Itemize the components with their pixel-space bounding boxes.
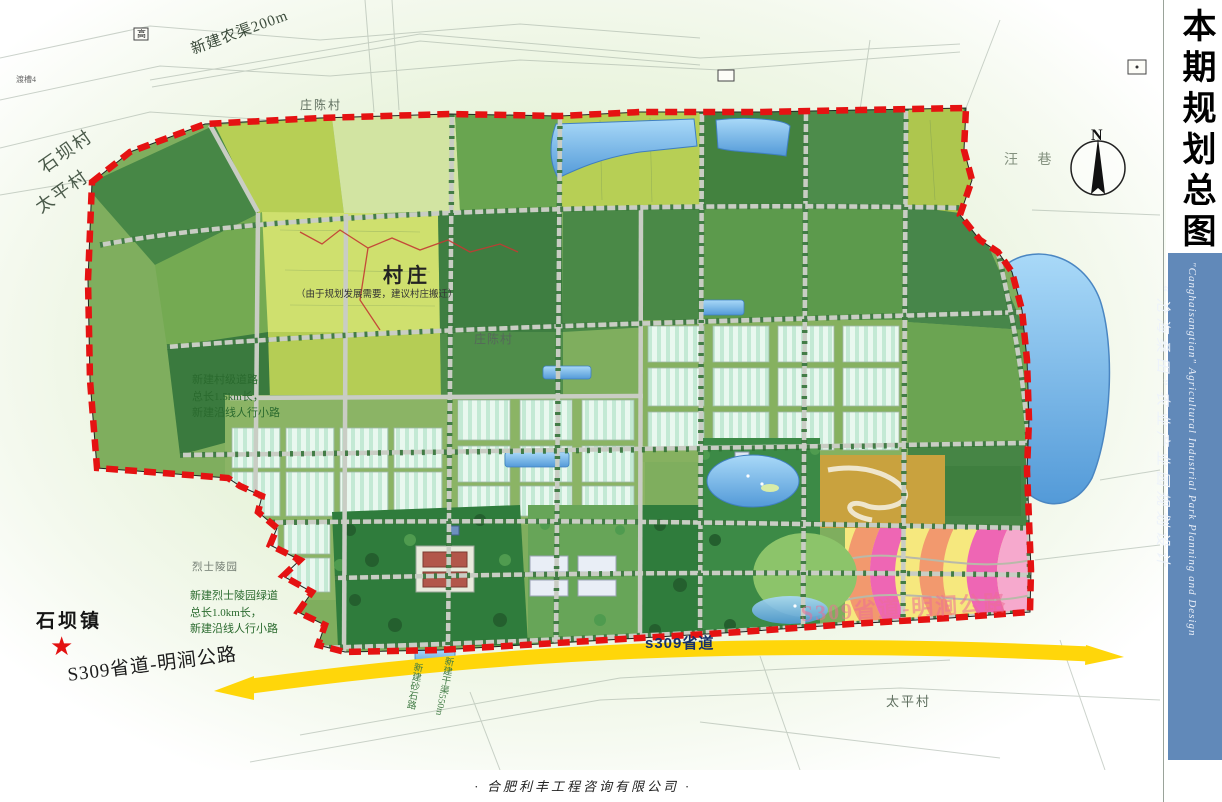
- town-marker-star-icon: ★: [50, 634, 73, 660]
- sidebar-subtitle-en: "Canghaisangtian" Agricultural Industria…: [1186, 262, 1198, 636]
- sidebar-subtitle-cn: “沧海桑田”农业产业园规划设计: [1153, 284, 1174, 571]
- plan-sheet: 新建农渠200m 庄陈村 石坝村 太平村 村庄 （由于规划发展需要，建议村庄搬迁…: [0, 0, 1222, 802]
- map-svg: [0, 0, 1166, 770]
- sheet-title: 本期规划总图: [1176, 8, 1220, 260]
- company-footer: · 合肥利丰工程咨询有限公司 ·: [0, 776, 1166, 795]
- map-canvas: 新建农渠200m 庄陈村 石坝村 太平村 村庄 （由于规划发展需要，建议村庄搬迁…: [0, 0, 1166, 770]
